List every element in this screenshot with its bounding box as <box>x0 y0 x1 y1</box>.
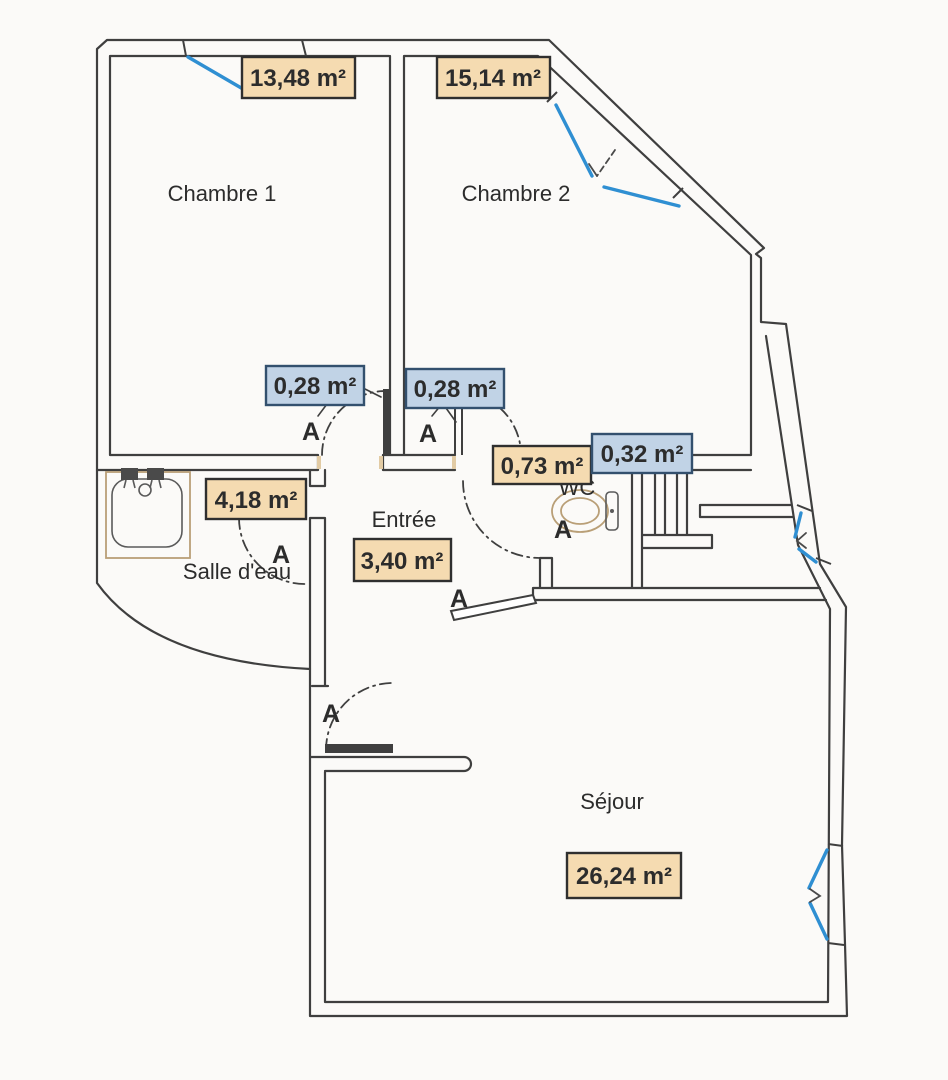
door-threshold <box>317 456 321 469</box>
door-letter: A <box>450 585 468 613</box>
area-value: 3,40 m² <box>361 548 444 575</box>
room-label-entree: Entrée <box>372 507 437 532</box>
door-letter: A <box>554 516 572 544</box>
door-letter: A <box>302 418 320 446</box>
area-value: 0,28 m² <box>274 373 357 400</box>
door-leaf-sejour <box>325 744 393 753</box>
area-badge-small-2: 0,28 m² <box>406 369 504 408</box>
floor-plan-canvas: Chambre 1 Chambre 2 Salle d'eau Entrée W… <box>0 0 948 1080</box>
door-letter: A <box>322 700 340 728</box>
area-value: 4,18 m² <box>215 487 298 514</box>
window-leaf-icon <box>604 187 679 206</box>
sink-icon <box>106 468 190 558</box>
door-arc-wc <box>463 481 540 558</box>
area-value: 26,24 m² <box>576 863 672 890</box>
room-label-sejour: Séjour <box>580 789 644 814</box>
area-badge-small-1: 0,28 m² <box>266 366 364 405</box>
area-badge-salle-eau: 4,18 m² <box>206 479 306 519</box>
door-threshold <box>379 456 383 469</box>
area-badge-sejour: 26,24 m² <box>567 853 681 898</box>
area-badge-entree: 3,40 m² <box>354 539 451 581</box>
door-leaf-chambre1 <box>383 389 390 455</box>
door-letter: A <box>419 420 437 448</box>
area-value: 15,14 m² <box>445 65 541 92</box>
area-badge-wc: 0,73 m² <box>493 446 591 484</box>
area-badge-chambre2: 15,14 m² <box>437 57 550 98</box>
label-leader-line <box>365 389 381 397</box>
area-value: 13,48 m² <box>250 65 346 92</box>
area-value: 0,28 m² <box>414 376 497 403</box>
window-arrow-icon <box>810 889 820 902</box>
room-label-chambre1: Chambre 1 <box>168 181 277 206</box>
area-badge-small-3: 0,32 m² <box>592 434 692 473</box>
window-leaf-icon <box>188 57 243 89</box>
area-value: 0,32 m² <box>601 441 684 468</box>
window-leaf-icon <box>556 105 592 176</box>
floor-plan-page: Chambre 1 Chambre 2 Salle d'eau Entrée W… <box>0 0 948 1080</box>
room-label-chambre2: Chambre 2 <box>462 181 571 206</box>
door-threshold <box>452 456 456 469</box>
area-badge-chambre1: 13,48 m² <box>242 57 355 98</box>
area-value: 0,73 m² <box>501 453 584 480</box>
window-swing-dash <box>597 150 615 176</box>
door-letter: A <box>272 541 290 569</box>
